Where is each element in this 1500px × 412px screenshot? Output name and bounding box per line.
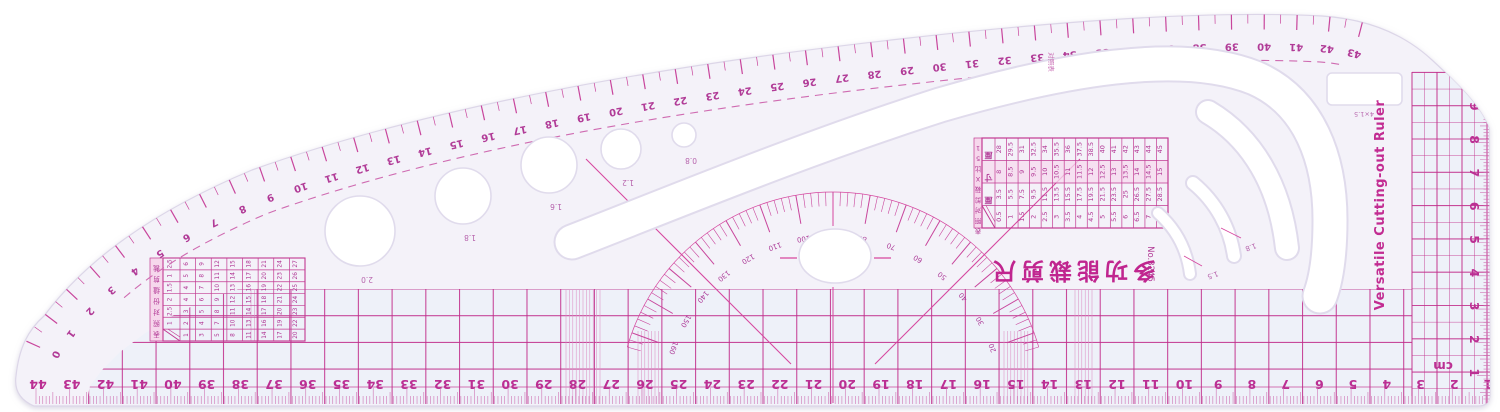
svg-text:对: 对 bbox=[974, 206, 981, 215]
svg-text:2.5: 2.5 bbox=[1041, 212, 1049, 222]
svg-text:19: 19 bbox=[872, 377, 889, 392]
svg-text:4: 4 bbox=[1076, 215, 1084, 219]
svg-text:7: 7 bbox=[215, 321, 221, 325]
svg-text:8: 8 bbox=[231, 333, 237, 337]
svg-text:3: 3 bbox=[184, 309, 190, 313]
svg-text:4.5: 4.5 bbox=[1087, 212, 1095, 222]
svg-text:2.5: 2.5 bbox=[168, 306, 174, 316]
svg-text:13: 13 bbox=[231, 284, 237, 292]
svg-text:3: 3 bbox=[1052, 215, 1060, 219]
svg-text:42: 42 bbox=[97, 377, 114, 392]
svg-text:10: 10 bbox=[215, 284, 221, 292]
svg-text:剪: 剪 bbox=[153, 275, 160, 284]
svg-text:32.5: 32.5 bbox=[1029, 142, 1037, 156]
svg-text:9.5: 9.5 bbox=[1029, 167, 1037, 177]
svg-text:1: 1 bbox=[184, 333, 190, 337]
svg-text:13: 13 bbox=[246, 319, 252, 327]
svg-text:10: 10 bbox=[1467, 64, 1482, 82]
svg-text:36: 36 bbox=[299, 377, 317, 392]
svg-text:5: 5 bbox=[184, 274, 190, 278]
svg-text:10.5: 10.5 bbox=[1052, 165, 1060, 179]
svg-text:27: 27 bbox=[293, 260, 299, 268]
svg-text:13.5: 13.5 bbox=[1122, 165, 1130, 179]
svg-text:38.5: 38.5 bbox=[1087, 142, 1095, 156]
svg-text:18: 18 bbox=[906, 377, 923, 392]
svg-text:寸: 寸 bbox=[985, 173, 993, 183]
svg-text:2: 2 bbox=[168, 297, 174, 301]
svg-text:37.5: 37.5 bbox=[1076, 142, 1084, 156]
svg-text:1: 1 bbox=[168, 274, 174, 278]
svg-text:27.5: 27.5 bbox=[1145, 187, 1153, 201]
svg-text:21.5: 21.5 bbox=[1099, 187, 1107, 201]
svg-text:5: 5 bbox=[199, 309, 205, 313]
svg-text:X: X bbox=[975, 175, 980, 183]
product-title-cn: 多功能裁剪尺 bbox=[988, 257, 1156, 284]
circle-template-cutout bbox=[521, 137, 577, 193]
svg-text:24: 24 bbox=[293, 296, 299, 304]
svg-text:10: 10 bbox=[1041, 168, 1049, 176]
svg-text:26.5: 26.5 bbox=[1133, 187, 1141, 201]
svg-text:31: 31 bbox=[965, 57, 980, 69]
svg-text:43: 43 bbox=[63, 377, 80, 392]
svg-text:11: 11 bbox=[1142, 377, 1159, 392]
svg-text:1.8: 1.8 bbox=[464, 233, 476, 242]
svg-text:14: 14 bbox=[262, 331, 268, 339]
svg-text:14: 14 bbox=[1041, 377, 1059, 392]
svg-text:18: 18 bbox=[246, 260, 252, 268]
circle-template-cutout bbox=[435, 168, 491, 224]
svg-text:3: 3 bbox=[199, 333, 205, 337]
svg-text:14: 14 bbox=[231, 272, 237, 280]
svg-text:4: 4 bbox=[184, 285, 190, 289]
svg-text:14: 14 bbox=[1133, 168, 1141, 176]
svg-text:33: 33 bbox=[400, 377, 417, 392]
circle-template-cutout bbox=[325, 196, 395, 266]
svg-text:份: 份 bbox=[153, 297, 160, 306]
svg-text:13: 13 bbox=[1075, 377, 1092, 392]
svg-text:5: 5 bbox=[1349, 377, 1358, 392]
buttonhole-slot bbox=[1327, 73, 1402, 105]
svg-text:31: 31 bbox=[1018, 145, 1026, 153]
svg-text:29.5: 29.5 bbox=[1006, 142, 1014, 156]
svg-text:9: 9 bbox=[215, 297, 221, 301]
svg-text:12: 12 bbox=[1108, 377, 1125, 392]
svg-text:25: 25 bbox=[769, 80, 784, 93]
svg-text:20: 20 bbox=[293, 331, 299, 339]
svg-text:21: 21 bbox=[640, 99, 656, 112]
svg-text:15: 15 bbox=[1007, 377, 1024, 392]
svg-text:11: 11 bbox=[1064, 168, 1072, 176]
svg-text:42: 42 bbox=[1122, 145, 1130, 153]
svg-text:24: 24 bbox=[703, 377, 721, 392]
center-ellipse-hole bbox=[799, 229, 871, 283]
svg-text:7.5: 7.5 bbox=[1018, 189, 1026, 199]
svg-text:cm: cm bbox=[1433, 359, 1453, 373]
svg-text:11.5: 11.5 bbox=[1076, 165, 1084, 179]
model-number: No.3245 bbox=[1145, 246, 1155, 282]
svg-text:缝: 缝 bbox=[153, 286, 160, 295]
svg-text:9: 9 bbox=[1214, 377, 1223, 392]
svg-text:3.5: 3.5 bbox=[995, 189, 1003, 199]
svg-text:22: 22 bbox=[771, 377, 788, 392]
svg-text:1.5: 1.5 bbox=[1018, 212, 1026, 222]
svg-text:17.5: 17.5 bbox=[1076, 187, 1084, 201]
svg-text:40: 40 bbox=[164, 377, 182, 392]
svg-text:45: 45 bbox=[1156, 145, 1164, 153]
svg-text:22: 22 bbox=[278, 284, 284, 292]
svg-text:26: 26 bbox=[293, 272, 299, 280]
svg-text:20: 20 bbox=[838, 377, 856, 392]
svg-text:19.5: 19.5 bbox=[1087, 187, 1095, 201]
svg-text:26: 26 bbox=[636, 377, 654, 392]
svg-text:44: 44 bbox=[29, 377, 47, 392]
svg-text:10: 10 bbox=[1175, 377, 1193, 392]
svg-text:15: 15 bbox=[246, 296, 252, 304]
svg-text:35.5: 35.5 bbox=[1052, 142, 1060, 156]
svg-text:25: 25 bbox=[293, 284, 299, 292]
svg-text:11: 11 bbox=[231, 307, 237, 315]
svg-text:13: 13 bbox=[1110, 168, 1118, 176]
svg-text:21: 21 bbox=[278, 296, 284, 304]
svg-text:40: 40 bbox=[1257, 40, 1271, 51]
svg-text:表: 表 bbox=[153, 330, 160, 339]
svg-text:20: 20 bbox=[278, 307, 284, 315]
svg-text:4×1.5: 4×1.5 bbox=[1354, 110, 1374, 118]
svg-text:34: 34 bbox=[1041, 145, 1049, 153]
svg-text:15.5: 15.5 bbox=[1064, 187, 1072, 201]
svg-text:17: 17 bbox=[246, 272, 252, 280]
svg-text:31: 31 bbox=[468, 377, 485, 392]
svg-text:38: 38 bbox=[232, 377, 249, 392]
svg-text:9: 9 bbox=[1018, 170, 1026, 174]
svg-text:23: 23 bbox=[278, 272, 284, 280]
svg-text:6: 6 bbox=[184, 262, 190, 266]
svg-text:6: 6 bbox=[1315, 377, 1324, 392]
svg-text:39: 39 bbox=[1225, 41, 1239, 52]
svg-text:42: 42 bbox=[1319, 42, 1334, 54]
svg-text:0.5: 0.5 bbox=[995, 212, 1003, 222]
svg-text:23.5: 23.5 bbox=[1110, 187, 1118, 201]
svg-text:41: 41 bbox=[1110, 145, 1118, 153]
svg-text:28: 28 bbox=[995, 145, 1003, 153]
svg-text:11: 11 bbox=[246, 331, 252, 339]
svg-text:23: 23 bbox=[705, 89, 720, 102]
svg-text:27: 27 bbox=[603, 377, 620, 392]
svg-text:35: 35 bbox=[333, 377, 350, 392]
svg-text:17: 17 bbox=[262, 307, 268, 315]
svg-text:3.5: 3.5 bbox=[1064, 212, 1072, 222]
svg-text:3: 3 bbox=[1416, 377, 1425, 392]
svg-text:15: 15 bbox=[1156, 168, 1164, 176]
svg-text:44: 44 bbox=[1145, 145, 1153, 153]
svg-text:照: 照 bbox=[153, 319, 160, 327]
svg-text:比: 比 bbox=[974, 165, 981, 174]
svg-text:16: 16 bbox=[262, 319, 268, 327]
svg-text:表: 表 bbox=[974, 227, 981, 236]
svg-text:25: 25 bbox=[1122, 190, 1130, 198]
svg-text:5: 5 bbox=[976, 154, 980, 162]
svg-text:20: 20 bbox=[262, 272, 268, 280]
svg-text:6.5: 6.5 bbox=[1133, 212, 1141, 222]
svg-text:6: 6 bbox=[199, 297, 205, 301]
svg-text:剪: 剪 bbox=[974, 196, 981, 205]
svg-text:裁: 裁 bbox=[974, 186, 981, 195]
svg-text:19: 19 bbox=[278, 319, 284, 327]
svg-text:厘: 厘 bbox=[985, 195, 993, 204]
svg-text:4: 4 bbox=[1382, 377, 1391, 392]
svg-text:1: 1 bbox=[1006, 215, 1014, 219]
svg-text:2: 2 bbox=[1029, 215, 1037, 219]
svg-text:14: 14 bbox=[246, 307, 252, 315]
circle-template-cutout bbox=[601, 129, 641, 169]
svg-text:2.0: 2.0 bbox=[361, 275, 373, 284]
svg-text:41: 41 bbox=[130, 377, 147, 392]
svg-text:39: 39 bbox=[198, 377, 215, 392]
svg-text:25: 25 bbox=[670, 377, 687, 392]
svg-text:26: 26 bbox=[802, 75, 817, 88]
svg-text:4: 4 bbox=[184, 297, 190, 301]
svg-text:12: 12 bbox=[231, 296, 237, 304]
svg-text:4: 4 bbox=[199, 321, 205, 325]
svg-text:对: 对 bbox=[153, 308, 160, 317]
svg-text:照: 照 bbox=[974, 217, 981, 225]
svg-text:5: 5 bbox=[215, 333, 221, 337]
svg-text:12: 12 bbox=[1087, 168, 1095, 176]
circle-template-cutout bbox=[672, 123, 696, 147]
svg-text:28.5: 28.5 bbox=[1156, 187, 1164, 201]
svg-text:7: 7 bbox=[199, 285, 205, 289]
svg-text:7: 7 bbox=[1281, 377, 1290, 392]
svg-text:30: 30 bbox=[501, 377, 519, 392]
svg-text:19: 19 bbox=[262, 284, 268, 292]
svg-text:11: 11 bbox=[215, 272, 221, 280]
svg-text:27: 27 bbox=[834, 71, 849, 84]
svg-text:21: 21 bbox=[805, 377, 822, 392]
svg-text:37: 37 bbox=[265, 377, 282, 392]
svg-text:40: 40 bbox=[1099, 145, 1107, 153]
svg-text:1.5: 1.5 bbox=[168, 283, 174, 293]
svg-text:1: 1 bbox=[168, 321, 174, 325]
product-title-en: Versatile Cutting-out Ruler bbox=[1373, 100, 1388, 311]
svg-text:5: 5 bbox=[1099, 215, 1107, 219]
svg-text:1.2: 1.2 bbox=[622, 178, 634, 187]
svg-text:28: 28 bbox=[569, 377, 586, 392]
svg-text:32: 32 bbox=[434, 377, 451, 392]
svg-text:17: 17 bbox=[940, 377, 957, 392]
svg-text:22: 22 bbox=[293, 319, 299, 327]
svg-text:0.8: 0.8 bbox=[685, 156, 697, 165]
svg-text:5.5: 5.5 bbox=[1110, 212, 1118, 222]
svg-text:2: 2 bbox=[184, 321, 190, 325]
svg-text:16: 16 bbox=[973, 377, 991, 392]
product-photo: 203040506070809010011012013014015016015比… bbox=[0, 0, 1500, 412]
svg-text:41: 41 bbox=[1289, 41, 1303, 52]
svg-text:21: 21 bbox=[262, 260, 268, 268]
svg-text:23: 23 bbox=[737, 377, 754, 392]
svg-text:30: 30 bbox=[932, 60, 947, 72]
svg-text:13.5: 13.5 bbox=[1052, 187, 1060, 201]
svg-text:8: 8 bbox=[995, 170, 1003, 174]
svg-text:8: 8 bbox=[199, 274, 205, 278]
svg-text:24: 24 bbox=[278, 260, 284, 268]
svg-text:14.5: 14.5 bbox=[1145, 165, 1153, 179]
sewing-ruler: 203040506070809010011012013014015016015比… bbox=[0, 0, 1500, 412]
svg-text:12: 12 bbox=[215, 260, 221, 268]
svg-text:5.5: 5.5 bbox=[1006, 189, 1014, 199]
svg-text:8: 8 bbox=[1248, 377, 1257, 392]
svg-text:22: 22 bbox=[672, 94, 688, 107]
svg-text:10: 10 bbox=[231, 319, 237, 327]
svg-text:32: 32 bbox=[997, 54, 1012, 66]
svg-text:29: 29 bbox=[535, 377, 552, 392]
svg-text:2: 2 bbox=[1450, 377, 1459, 392]
svg-text:36: 36 bbox=[1064, 145, 1072, 153]
svg-text:18: 18 bbox=[262, 296, 268, 304]
svg-text:12.5: 12.5 bbox=[1099, 165, 1107, 179]
svg-text:34: 34 bbox=[366, 377, 384, 392]
svg-text:厘: 厘 bbox=[985, 150, 993, 159]
svg-text:43: 43 bbox=[1133, 145, 1141, 153]
svg-text:11.5: 11.5 bbox=[1041, 187, 1049, 201]
svg-text:29: 29 bbox=[899, 64, 914, 76]
svg-text:15: 15 bbox=[231, 260, 237, 268]
svg-text:17: 17 bbox=[278, 331, 284, 339]
svg-text:9: 9 bbox=[199, 262, 205, 266]
svg-text:23: 23 bbox=[293, 307, 299, 315]
svg-text:6: 6 bbox=[1122, 215, 1130, 219]
svg-text:28: 28 bbox=[867, 67, 882, 80]
svg-text:8.5: 8.5 bbox=[1006, 167, 1014, 177]
corner-note: 对照表 bbox=[1047, 52, 1056, 72]
svg-text:8: 8 bbox=[215, 309, 221, 313]
svg-text:1: 1 bbox=[976, 144, 980, 152]
svg-text:9.5: 9.5 bbox=[1029, 189, 1037, 199]
svg-text:1.6: 1.6 bbox=[550, 202, 562, 211]
svg-text:24: 24 bbox=[737, 84, 752, 97]
svg-text:16: 16 bbox=[246, 284, 252, 292]
